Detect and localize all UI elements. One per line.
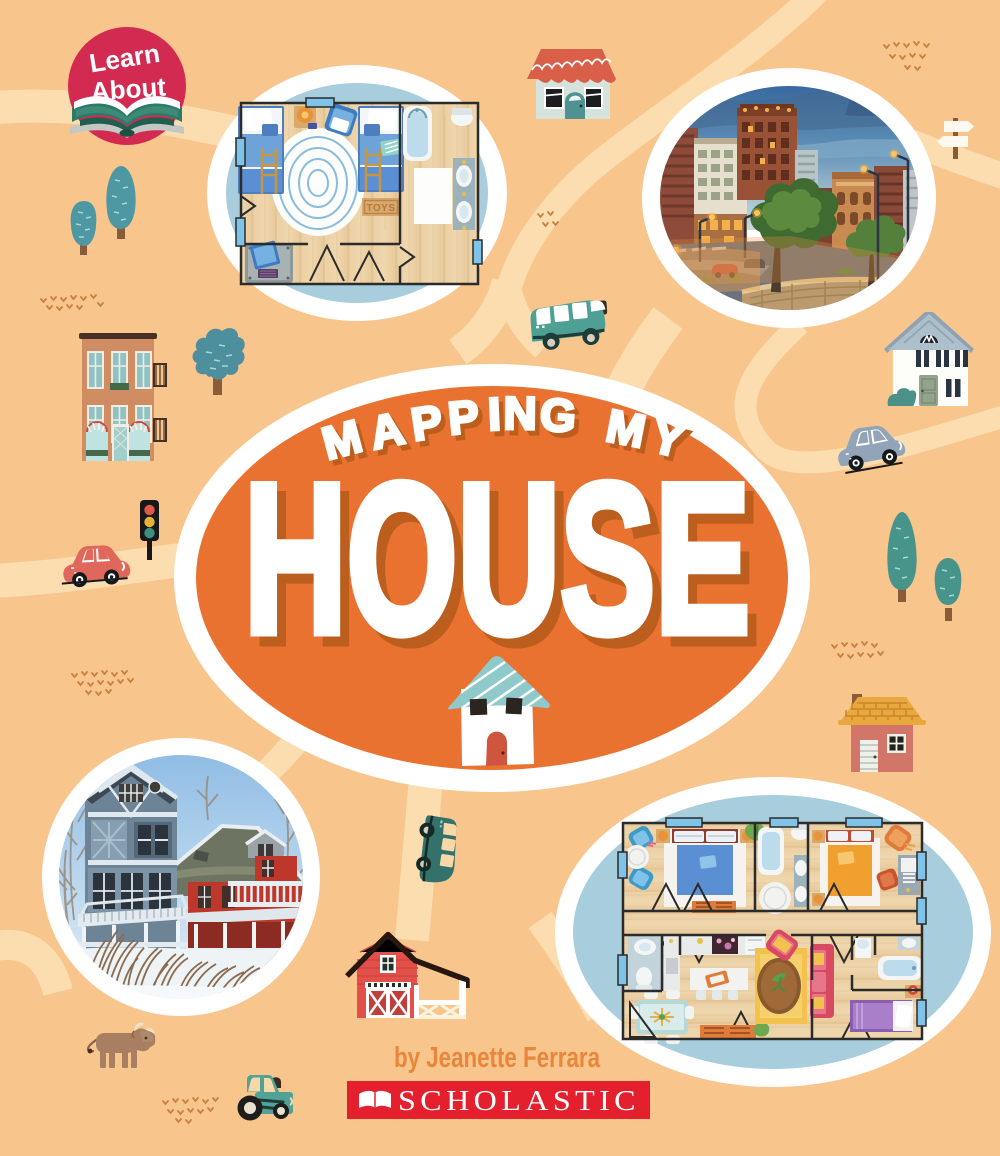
svg-text:N: N (503, 387, 537, 439)
svg-text:by Jeanette Ferrara: by Jeanette Ferrara (394, 1042, 601, 1074)
svg-text:G: G (538, 388, 577, 442)
svg-text:P: P (446, 390, 482, 445)
svg-text:TOYS: TOYS (366, 203, 395, 214)
svg-text:SCHOLASTIC: SCHOLASTIC (398, 1085, 640, 1117)
svg-text:HOUSE: HOUSE (244, 440, 750, 678)
svg-text:I: I (487, 388, 502, 441)
